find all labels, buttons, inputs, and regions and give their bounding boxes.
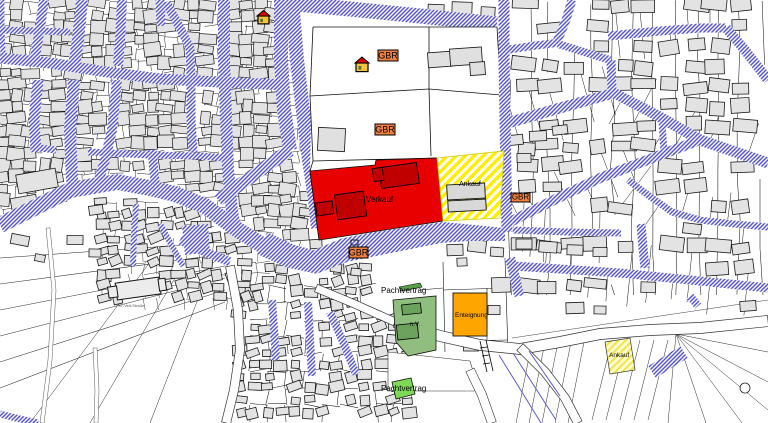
svg-text:Verkauf: Verkauf <box>366 195 394 204</box>
svg-text:GBR: GBR <box>512 193 530 202</box>
svg-text:Ankauf: Ankauf <box>609 352 629 359</box>
svg-text:GBR: GBR <box>378 51 398 61</box>
svg-text:Pachtvertrag: Pachtvertrag <box>381 384 426 393</box>
svg-text:GBR: GBR <box>375 125 395 135</box>
svg-text:Ankauf: Ankauf <box>459 181 481 188</box>
svg-text:n.V.: n.V. <box>410 322 420 328</box>
svg-text:Enteignung: Enteignung <box>455 312 488 319</box>
svg-text:Pachtvertrag: Pachtvertrag <box>381 286 426 295</box>
svg-text:St.-Veit-Straße: St.-Veit-Straße <box>118 303 145 308</box>
svg-text:GBR: GBR <box>349 248 369 258</box>
